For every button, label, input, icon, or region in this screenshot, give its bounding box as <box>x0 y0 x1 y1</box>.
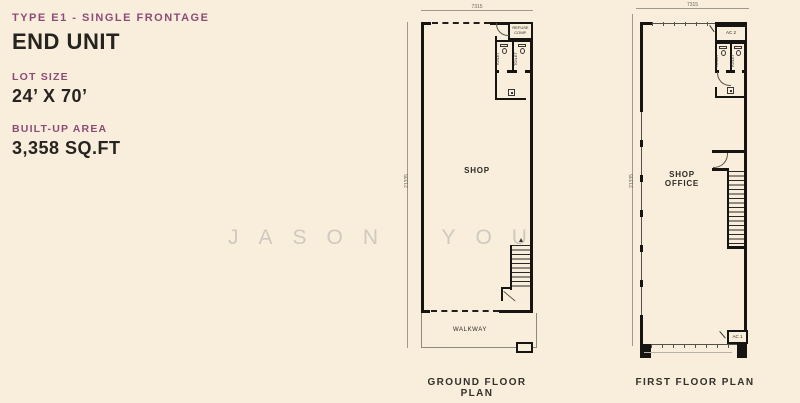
walkway-edge <box>644 352 732 353</box>
toilet-cistern-icon <box>500 44 508 47</box>
toilet-bowl-icon <box>520 48 525 54</box>
gf-rear-shutter-line <box>432 22 490 24</box>
wall-segment <box>421 22 431 25</box>
wall-segment <box>742 70 747 73</box>
wall-segment <box>501 287 503 301</box>
wall-segment <box>525 70 533 73</box>
front-window-line <box>651 344 737 345</box>
gf-shop-label: SHOP <box>447 166 507 175</box>
gf-front-shutter-line <box>431 310 499 312</box>
wall-segment <box>421 22 424 313</box>
stair-direction-arrow <box>519 238 523 242</box>
built-up-area-label: BUILT-UP AREA <box>12 123 272 135</box>
wall-segment <box>640 22 643 105</box>
door-swing-arc <box>717 72 731 86</box>
walkway-edge <box>536 313 537 348</box>
front-window-line <box>652 23 715 24</box>
gf-walkway-label: WALKWAY <box>430 327 510 333</box>
wall-segment <box>421 310 430 313</box>
window-mullion <box>640 105 643 112</box>
ff-toilet-label-right: TOILET <box>730 50 736 72</box>
toilet-bowl-icon <box>736 50 741 56</box>
floor-plan-sheet: TYPE E1 - SINGLE FRONTAGE END UNIT LOT S… <box>0 0 800 403</box>
wall-segment <box>507 70 517 73</box>
ff-top-dimension-line <box>636 8 749 9</box>
staircase <box>512 245 530 287</box>
info-panel: TYPE E1 - SINGLE FRONTAGE END UNIT LOT S… <box>12 12 272 159</box>
window-mullion <box>640 245 643 252</box>
unit-name: END UNIT <box>12 29 272 55</box>
door-swing-arc <box>713 153 728 168</box>
gf-refuse-label: REFUSE COMP. <box>508 26 533 35</box>
corner-column <box>640 344 651 358</box>
gf-toilet-label-left: TOILET <box>495 48 501 70</box>
wall-segment <box>495 98 526 100</box>
window-mullion <box>640 175 643 182</box>
toilet-cistern-icon <box>719 46 727 49</box>
gf-caption: GROUND FLOOR PLAN <box>417 377 537 399</box>
ff-width-dimension: 7315 <box>636 2 749 8</box>
gf-top-dimension-line <box>421 10 533 11</box>
corner-column <box>516 342 533 353</box>
wall-segment <box>712 168 728 171</box>
wall-segment <box>495 73 497 100</box>
wall-segment <box>530 22 533 313</box>
lot-size-label: LOT SIZE <box>12 71 272 83</box>
lot-size-value: 24’ X 70’ <box>12 86 272 107</box>
ff-shop-office-label: SHOP OFFICE <box>652 170 712 188</box>
ff-ac2-label: AC 2 <box>715 30 747 35</box>
built-up-area-value: 3,358 SQ.FT <box>12 138 272 159</box>
toilet-cistern-icon <box>518 44 526 47</box>
wall-segment <box>495 40 533 42</box>
toilet-bowl-icon <box>721 50 726 56</box>
gf-height-dimension: 21335 <box>404 164 410 198</box>
ff-ac1-label: AC 1 <box>727 334 748 339</box>
wall-segment <box>727 246 747 249</box>
ff-shop-office-line2: OFFICE <box>652 179 712 188</box>
ff-height-dimension: 21335 <box>629 164 635 198</box>
window-mullion <box>640 280 643 287</box>
gf-toilet-label-right: TOILET <box>513 48 519 70</box>
staircase <box>729 171 744 246</box>
wall-segment <box>715 96 747 98</box>
wall-segment <box>640 22 652 25</box>
corner-column <box>737 344 747 358</box>
window-mullion <box>640 210 643 217</box>
ground-floor-plan: 7315 21335 REFUSE COMP. TOILET TOILET <box>400 0 570 403</box>
door-swing-arc <box>496 23 509 36</box>
ff-caption: FIRST FLOOR PLAN <box>635 377 755 388</box>
ff-toilet-label-left: TOILET <box>714 50 720 72</box>
wall-segment <box>499 310 533 313</box>
louvre-door-line <box>709 25 714 32</box>
floor-trap-dot <box>730 90 732 92</box>
wall-segment <box>640 315 643 347</box>
gf-width-dimension: 7315 <box>421 4 533 10</box>
toilet-cistern-icon <box>734 46 742 49</box>
window-mullion <box>640 140 643 147</box>
first-floor-plan: 7315 21335 AC 2 <box>620 0 800 403</box>
floor-trap-dot <box>511 92 513 94</box>
door-leaf-line <box>503 291 515 301</box>
walkway-edge <box>421 313 422 347</box>
ff-shop-office-line1: SHOP <box>652 170 712 179</box>
toilet-bowl-icon <box>502 48 507 54</box>
louvre-door-line <box>719 331 726 339</box>
unit-type-label: TYPE E1 - SINGLE FRONTAGE <box>12 12 272 24</box>
